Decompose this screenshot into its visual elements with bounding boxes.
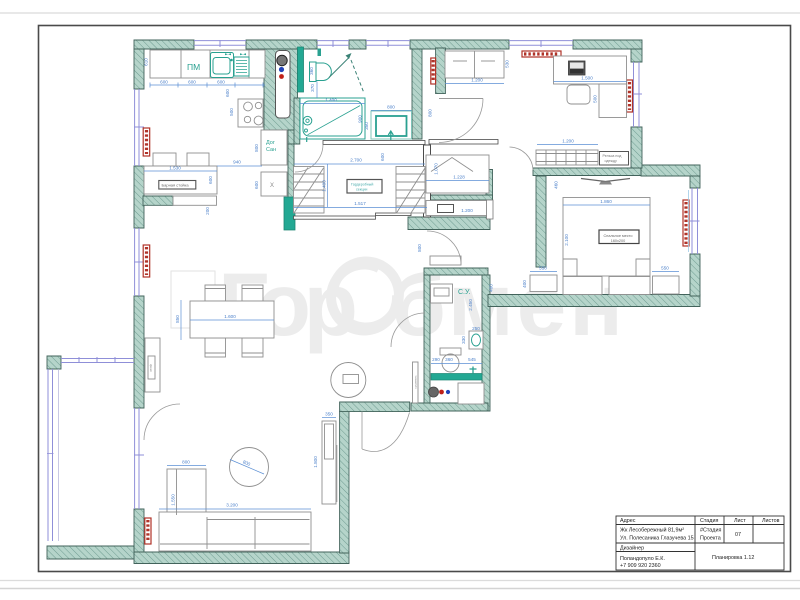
- svg-text:460: 460: [554, 181, 559, 189]
- svg-text:1.600: 1.600: [224, 314, 236, 319]
- svg-text:1.530: 1.530: [169, 166, 181, 171]
- svg-text:одежду: одежду: [605, 159, 617, 163]
- svg-text:1.400: 1.400: [325, 98, 337, 103]
- svg-text:Стадия: Стадия: [700, 518, 718, 524]
- svg-text:330: 330: [461, 336, 466, 344]
- svg-text:600: 600: [380, 153, 385, 161]
- svg-text:Гардеробный: Гардеробный: [351, 183, 373, 187]
- svg-text:800: 800: [182, 460, 190, 465]
- svg-text:200: 200: [205, 207, 210, 215]
- svg-text:1.800: 1.800: [313, 456, 318, 468]
- svg-text:секции: секции: [356, 188, 367, 192]
- svg-text:1.200: 1.200: [562, 139, 574, 144]
- svg-text:2.700: 2.700: [350, 158, 362, 163]
- svg-text:600: 600: [217, 80, 225, 85]
- svg-text:400: 400: [489, 284, 494, 292]
- svg-text:350: 350: [325, 412, 333, 417]
- svg-text:500: 500: [229, 108, 234, 116]
- svg-text:940: 940: [233, 160, 241, 165]
- svg-text:360: 360: [309, 67, 314, 75]
- svg-text:545: 545: [468, 357, 476, 362]
- svg-text:Дог: Дог: [266, 140, 275, 146]
- svg-text:290: 290: [432, 357, 440, 362]
- svg-text:Планировка 1.12: Планировка 1.12: [712, 555, 754, 561]
- svg-text:600: 600: [188, 80, 196, 85]
- svg-text:800: 800: [254, 144, 259, 152]
- svg-text:сушитель: сушитель: [414, 375, 418, 389]
- svg-text:2.450: 2.450: [468, 299, 473, 311]
- svg-text:1.200: 1.200: [471, 77, 483, 82]
- svg-text:600: 600: [254, 181, 259, 189]
- svg-text:ПМ: ПМ: [187, 62, 200, 72]
- svg-text:400: 400: [522, 280, 527, 288]
- svg-text:160х200: 160х200: [611, 239, 626, 243]
- svg-text:1.200: 1.200: [461, 208, 473, 213]
- svg-text:3.200: 3.200: [226, 503, 238, 508]
- svg-text:550: 550: [661, 266, 669, 271]
- svg-text:550: 550: [539, 266, 547, 271]
- svg-text:2.100: 2.100: [564, 234, 569, 246]
- svg-text:07: 07: [735, 532, 741, 538]
- svg-text:Дизайнер: Дизайнер: [620, 545, 644, 552]
- svg-text:Листов: Листов: [762, 518, 780, 524]
- svg-text:350: 350: [364, 122, 369, 130]
- svg-text:610: 610: [144, 58, 149, 66]
- svg-text:900: 900: [358, 115, 363, 123]
- svg-text:1.860: 1.860: [600, 199, 612, 204]
- svg-text:Ул. Полесаника Глазучева 15: Ул. Полесаника Глазучева 15: [620, 536, 694, 542]
- svg-text:1.500: 1.500: [581, 76, 593, 81]
- svg-text:250: 250: [472, 326, 480, 331]
- svg-text:Сан: Сан: [266, 147, 276, 153]
- svg-text:600: 600: [225, 89, 230, 97]
- svg-text:600: 600: [208, 176, 213, 184]
- svg-text:360: 360: [445, 357, 453, 362]
- svg-text:Барная стойка: Барная стойка: [162, 183, 190, 188]
- svg-text:1.550: 1.550: [171, 494, 176, 506]
- svg-text:370: 370: [310, 84, 315, 92]
- svg-text:800: 800: [428, 109, 433, 117]
- svg-text:Жк Лесобережный 81,9м²: Жк Лесобережный 81,9м²: [620, 527, 684, 534]
- svg-text:Адрес: Адрес: [620, 518, 636, 524]
- svg-text:500: 500: [593, 95, 598, 103]
- svg-text:Поландопуло Е.К.: Поландопуло Е.К.: [620, 556, 665, 562]
- svg-text:Х: Х: [270, 183, 274, 189]
- svg-text:Спальное место: Спальное место: [604, 234, 633, 238]
- svg-text:Проекта: Проекта: [700, 536, 721, 542]
- svg-text:600: 600: [160, 80, 168, 85]
- svg-text:800: 800: [387, 104, 395, 109]
- svg-text:850: 850: [175, 315, 180, 323]
- svg-text:800: 800: [417, 244, 422, 252]
- svg-text:1.070: 1.070: [434, 163, 439, 175]
- svg-text:1.400: 1.400: [322, 180, 327, 192]
- svg-text:#Стадия: #Стадия: [700, 528, 721, 534]
- svg-text:530: 530: [505, 60, 510, 68]
- svg-text:1.228: 1.228: [453, 175, 465, 180]
- svg-text:шкаф: шкаф: [149, 364, 153, 372]
- svg-text:1.517: 1.517: [354, 201, 366, 206]
- svg-text:+7 909 920 2360: +7 909 920 2360: [620, 563, 661, 569]
- svg-text:С.У.: С.У.: [458, 289, 471, 296]
- svg-text:Лист: Лист: [734, 518, 746, 524]
- svg-text:Рельса под: Рельса под: [603, 154, 623, 158]
